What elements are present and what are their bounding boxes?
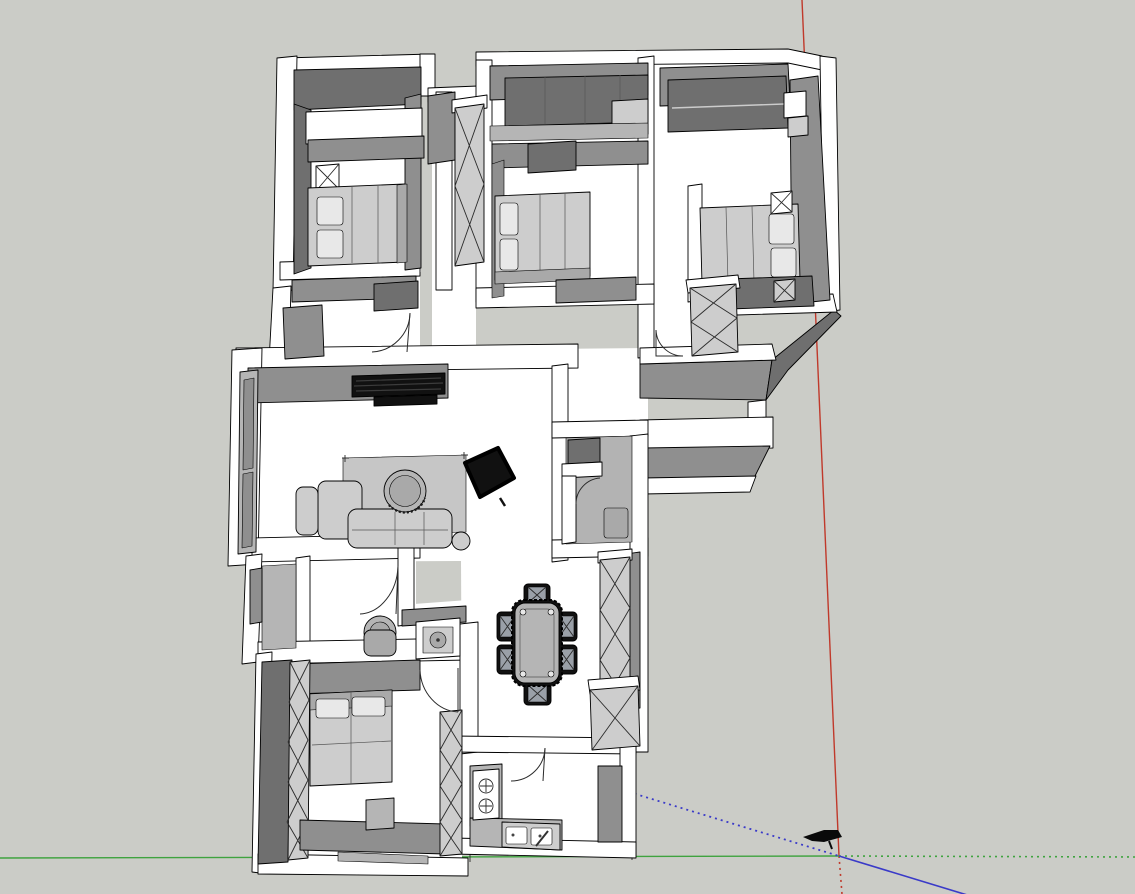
ledge-parapet-top[interactable] xyxy=(640,417,773,450)
pillow-2 xyxy=(500,239,518,270)
table-corner-1 xyxy=(520,609,526,615)
double-bed-northwest[interactable] xyxy=(308,184,407,266)
pillow-1 xyxy=(769,214,794,244)
ac-box-1[interactable] xyxy=(784,91,806,118)
round-coffee-table[interactable] xyxy=(384,470,426,512)
shower-tray[interactable] xyxy=(604,508,628,538)
sofa-seat[interactable] xyxy=(348,509,452,548)
washer-knob xyxy=(436,638,440,642)
dark-wardrobe[interactable] xyxy=(528,141,576,173)
pillow-2 xyxy=(771,248,796,277)
exterior-face-south-of-east-wing[interactable] xyxy=(640,360,772,400)
pillow-2 xyxy=(352,697,385,716)
kitchen-stove[interactable] xyxy=(473,769,499,820)
table-top[interactable] xyxy=(515,603,559,683)
ottoman-bench[interactable] xyxy=(366,798,394,830)
table-corner-4 xyxy=(548,671,554,677)
toilet[interactable] xyxy=(364,616,396,656)
shower-partition-side[interactable] xyxy=(562,476,576,544)
pillow-1 xyxy=(317,197,343,225)
x-braced-cabinet[interactable] xyxy=(588,676,640,750)
x-wardrobe-east-column[interactable] xyxy=(440,710,462,856)
dining-table[interactable] xyxy=(512,600,562,686)
storage-room-north[interactable] xyxy=(490,63,648,141)
viewport-canvas[interactable] xyxy=(0,0,1135,894)
table-corner-3 xyxy=(520,671,526,677)
double-bed-middle[interactable] xyxy=(495,192,590,284)
window-pane-2 xyxy=(242,472,253,548)
wall-face-north[interactable] xyxy=(294,67,421,110)
double-bed-east[interactable] xyxy=(700,204,800,284)
sink-basin-2 xyxy=(531,828,552,845)
wall-bathroom-west-divider[interactable] xyxy=(296,556,310,654)
sink-basin-1 xyxy=(506,827,527,844)
bed-foot-shade xyxy=(397,184,407,263)
window-pane-1 xyxy=(243,378,254,470)
kitchen-sink[interactable] xyxy=(502,822,560,850)
west-wall-outer-face[interactable] xyxy=(258,660,292,864)
stove-top[interactable] xyxy=(473,769,499,820)
side-stool[interactable] xyxy=(452,532,470,550)
dresser-south[interactable] xyxy=(556,277,636,303)
table-corner-2 xyxy=(548,609,554,615)
closet-side-face[interactable] xyxy=(428,92,455,164)
closet-front[interactable] xyxy=(455,104,484,266)
console-cabinet[interactable] xyxy=(374,281,418,311)
x-braced-wardrobe-east-wing[interactable] xyxy=(686,275,740,356)
wall-face-north[interactable] xyxy=(292,660,420,694)
window-west[interactable] xyxy=(250,568,262,624)
washing-machine[interactable] xyxy=(416,618,460,659)
toilet-bowl[interactable] xyxy=(364,630,396,656)
dresser-front[interactable] xyxy=(308,136,424,162)
pillow-2 xyxy=(317,230,343,258)
counter-right[interactable] xyxy=(598,766,622,842)
pillow-1 xyxy=(316,699,349,718)
window-bay-west[interactable] xyxy=(238,370,258,554)
double-bed-southwest[interactable] xyxy=(310,690,392,786)
tv-console[interactable] xyxy=(374,395,437,406)
wall-bedroom-sw-east[interactable] xyxy=(460,622,478,754)
pillow-1 xyxy=(500,203,518,235)
sofa-arm-left[interactable] xyxy=(296,487,318,535)
x-top-nightstand-foot[interactable] xyxy=(774,279,795,302)
model-viewport-svg[interactable] xyxy=(0,0,1135,894)
x-top-nightstand-head[interactable] xyxy=(771,191,792,214)
drain-1 xyxy=(512,834,515,837)
wall-face-south xyxy=(490,123,648,141)
vanity[interactable] xyxy=(568,438,600,464)
shoe-cabinet[interactable] xyxy=(283,305,324,359)
ledge-bottom-lip[interactable] xyxy=(643,476,756,494)
wardrobe-front[interactable] xyxy=(690,284,738,356)
table-inner xyxy=(390,476,421,507)
drain-2 xyxy=(539,835,542,838)
bathroom-east[interactable] xyxy=(562,436,632,544)
ac-box-2[interactable] xyxy=(788,116,808,137)
shower-zone-floor[interactable] xyxy=(262,564,296,650)
wardrobe-front[interactable] xyxy=(440,710,462,856)
wall-west-bedroom-nw[interactable] xyxy=(273,56,297,292)
